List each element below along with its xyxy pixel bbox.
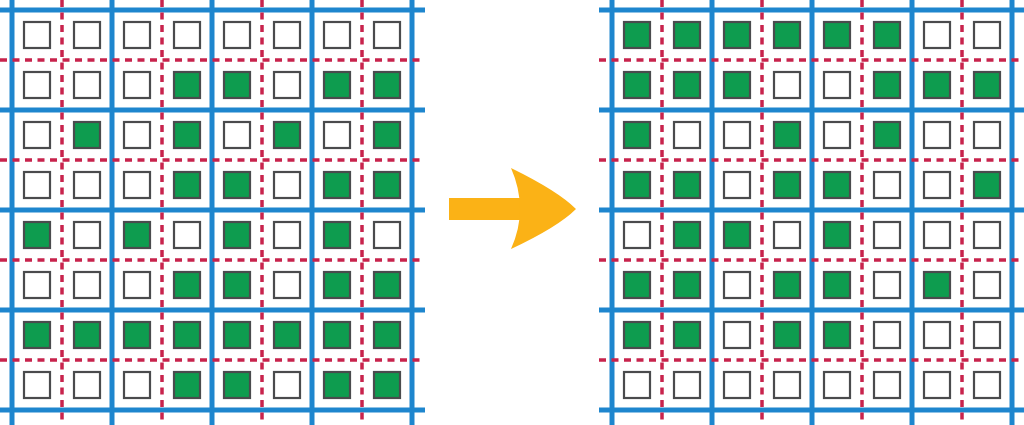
filled-cell xyxy=(924,72,950,98)
filled-cell xyxy=(174,72,200,98)
empty-cell xyxy=(174,22,200,48)
empty-cell xyxy=(124,72,150,98)
filled-cell xyxy=(374,272,400,298)
filled-cell xyxy=(674,222,700,248)
filled-cell xyxy=(374,322,400,348)
filled-cell xyxy=(324,172,350,198)
filled-cell xyxy=(374,72,400,98)
empty-cell xyxy=(724,172,750,198)
empty-cell xyxy=(874,372,900,398)
filled-cell xyxy=(324,272,350,298)
pattern-transformation-figure xyxy=(0,0,1024,425)
empty-cell xyxy=(274,22,300,48)
empty-cell xyxy=(924,322,950,348)
filled-cell xyxy=(324,372,350,398)
empty-cell xyxy=(224,122,250,148)
filled-cell xyxy=(374,172,400,198)
empty-cell xyxy=(324,122,350,148)
filled-cell xyxy=(374,372,400,398)
empty-cell xyxy=(324,22,350,48)
empty-cell xyxy=(824,122,850,148)
empty-cell xyxy=(74,72,100,98)
empty-cell xyxy=(274,172,300,198)
filled-cell xyxy=(374,122,400,148)
empty-cell xyxy=(124,172,150,198)
empty-cell xyxy=(124,272,150,298)
filled-cell xyxy=(324,222,350,248)
empty-cell xyxy=(24,172,50,198)
filled-cell xyxy=(624,172,650,198)
filled-cell xyxy=(774,122,800,148)
filled-cell xyxy=(724,22,750,48)
filled-cell xyxy=(274,322,300,348)
empty-cell xyxy=(374,222,400,248)
empty-cell xyxy=(724,322,750,348)
filled-cell xyxy=(824,222,850,248)
empty-cell xyxy=(74,22,100,48)
filled-cell xyxy=(974,72,1000,98)
empty-cell xyxy=(274,72,300,98)
right-grid xyxy=(599,0,1024,425)
filled-cell xyxy=(174,322,200,348)
filled-cell xyxy=(724,72,750,98)
filled-cell xyxy=(774,172,800,198)
filled-cell xyxy=(824,272,850,298)
filled-cell xyxy=(224,372,250,398)
filled-cell xyxy=(874,22,900,48)
filled-cell xyxy=(774,322,800,348)
empty-cell xyxy=(724,122,750,148)
empty-cell xyxy=(174,222,200,248)
filled-cell xyxy=(124,222,150,248)
empty-cell xyxy=(24,22,50,48)
empty-cell xyxy=(824,372,850,398)
empty-cell xyxy=(974,122,1000,148)
empty-cell xyxy=(974,322,1000,348)
filled-cell xyxy=(674,172,700,198)
filled-cell xyxy=(974,172,1000,198)
empty-cell xyxy=(924,22,950,48)
empty-cell xyxy=(774,372,800,398)
filled-cell xyxy=(674,322,700,348)
empty-cell xyxy=(74,372,100,398)
empty-cell xyxy=(74,272,100,298)
empty-cell xyxy=(274,222,300,248)
empty-cell xyxy=(974,222,1000,248)
empty-cell xyxy=(624,372,650,398)
empty-cell xyxy=(74,172,100,198)
filled-cell xyxy=(874,72,900,98)
right-arrow-icon xyxy=(449,168,576,249)
filled-cell xyxy=(774,22,800,48)
empty-cell xyxy=(724,272,750,298)
empty-cell xyxy=(824,72,850,98)
filled-cell xyxy=(624,22,650,48)
filled-cell xyxy=(624,322,650,348)
filled-cell xyxy=(174,372,200,398)
empty-cell xyxy=(24,122,50,148)
empty-cell xyxy=(924,372,950,398)
filled-cell xyxy=(74,122,100,148)
empty-cell xyxy=(874,172,900,198)
filled-cell xyxy=(624,272,650,298)
filled-cell xyxy=(624,122,650,148)
filled-cell xyxy=(24,322,50,348)
figure-svg xyxy=(0,0,1024,425)
empty-cell xyxy=(124,372,150,398)
filled-cell xyxy=(624,72,650,98)
empty-cell xyxy=(124,122,150,148)
filled-cell xyxy=(324,72,350,98)
empty-cell xyxy=(274,372,300,398)
filled-cell xyxy=(224,72,250,98)
filled-cell xyxy=(174,272,200,298)
empty-cell xyxy=(674,372,700,398)
empty-cell xyxy=(374,22,400,48)
empty-cell xyxy=(224,22,250,48)
empty-cell xyxy=(774,222,800,248)
filled-cell xyxy=(124,322,150,348)
left-grid xyxy=(0,0,425,425)
empty-cell xyxy=(24,272,50,298)
empty-cell xyxy=(974,22,1000,48)
filled-cell xyxy=(824,172,850,198)
empty-cell xyxy=(874,222,900,248)
filled-cell xyxy=(674,272,700,298)
filled-cell xyxy=(74,322,100,348)
empty-cell xyxy=(674,122,700,148)
empty-cell xyxy=(274,272,300,298)
filled-cell xyxy=(724,222,750,248)
empty-cell xyxy=(74,222,100,248)
empty-cell xyxy=(774,72,800,98)
filled-cell xyxy=(224,322,250,348)
empty-cell xyxy=(24,72,50,98)
filled-cell xyxy=(674,22,700,48)
filled-cell xyxy=(174,122,200,148)
filled-cell xyxy=(224,272,250,298)
filled-cell xyxy=(324,322,350,348)
empty-cell xyxy=(24,372,50,398)
filled-cell xyxy=(824,322,850,348)
empty-cell xyxy=(124,22,150,48)
empty-cell xyxy=(924,122,950,148)
filled-cell xyxy=(174,172,200,198)
empty-cell xyxy=(624,222,650,248)
empty-cell xyxy=(974,372,1000,398)
empty-cell xyxy=(874,322,900,348)
filled-cell xyxy=(224,172,250,198)
empty-cell xyxy=(924,172,950,198)
empty-cell xyxy=(974,272,1000,298)
filled-cell xyxy=(274,122,300,148)
filled-cell xyxy=(774,272,800,298)
filled-cell xyxy=(874,122,900,148)
empty-cell xyxy=(874,272,900,298)
filled-cell xyxy=(924,272,950,298)
filled-cell xyxy=(24,222,50,248)
empty-cell xyxy=(724,372,750,398)
empty-cell xyxy=(924,222,950,248)
filled-cell xyxy=(674,72,700,98)
filled-cell xyxy=(224,222,250,248)
filled-cell xyxy=(824,22,850,48)
